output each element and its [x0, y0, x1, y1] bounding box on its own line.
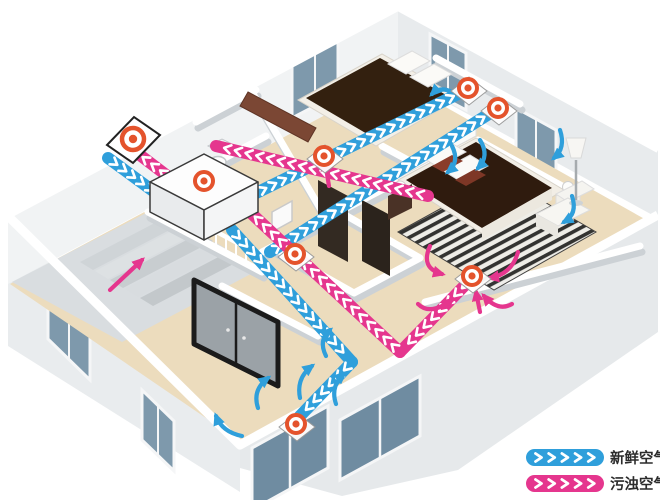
vent-core	[494, 104, 501, 111]
vent-core	[129, 135, 137, 143]
unit-top-vent	[195, 172, 213, 190]
vent-core	[464, 84, 471, 91]
vent-core	[468, 272, 475, 279]
legend-item-polluted-air: 污浊空气	[526, 475, 660, 493]
legend: 新鲜空气污浊空气	[526, 449, 660, 493]
vent-core	[291, 250, 298, 257]
vent-core	[200, 177, 207, 184]
hrv-floorplan-scene: 新鲜空气污浊空气	[0, 0, 660, 500]
vent-core	[292, 420, 299, 427]
legend-label-polluted-air: 污浊空气	[610, 475, 660, 493]
legend-label-fresh-air: 新鲜空气	[610, 449, 660, 467]
floorplan-illustration: 新鲜空气污浊空气	[0, 0, 660, 500]
vent-core	[320, 152, 327, 159]
legend-item-fresh-air: 新鲜空气	[526, 449, 660, 467]
